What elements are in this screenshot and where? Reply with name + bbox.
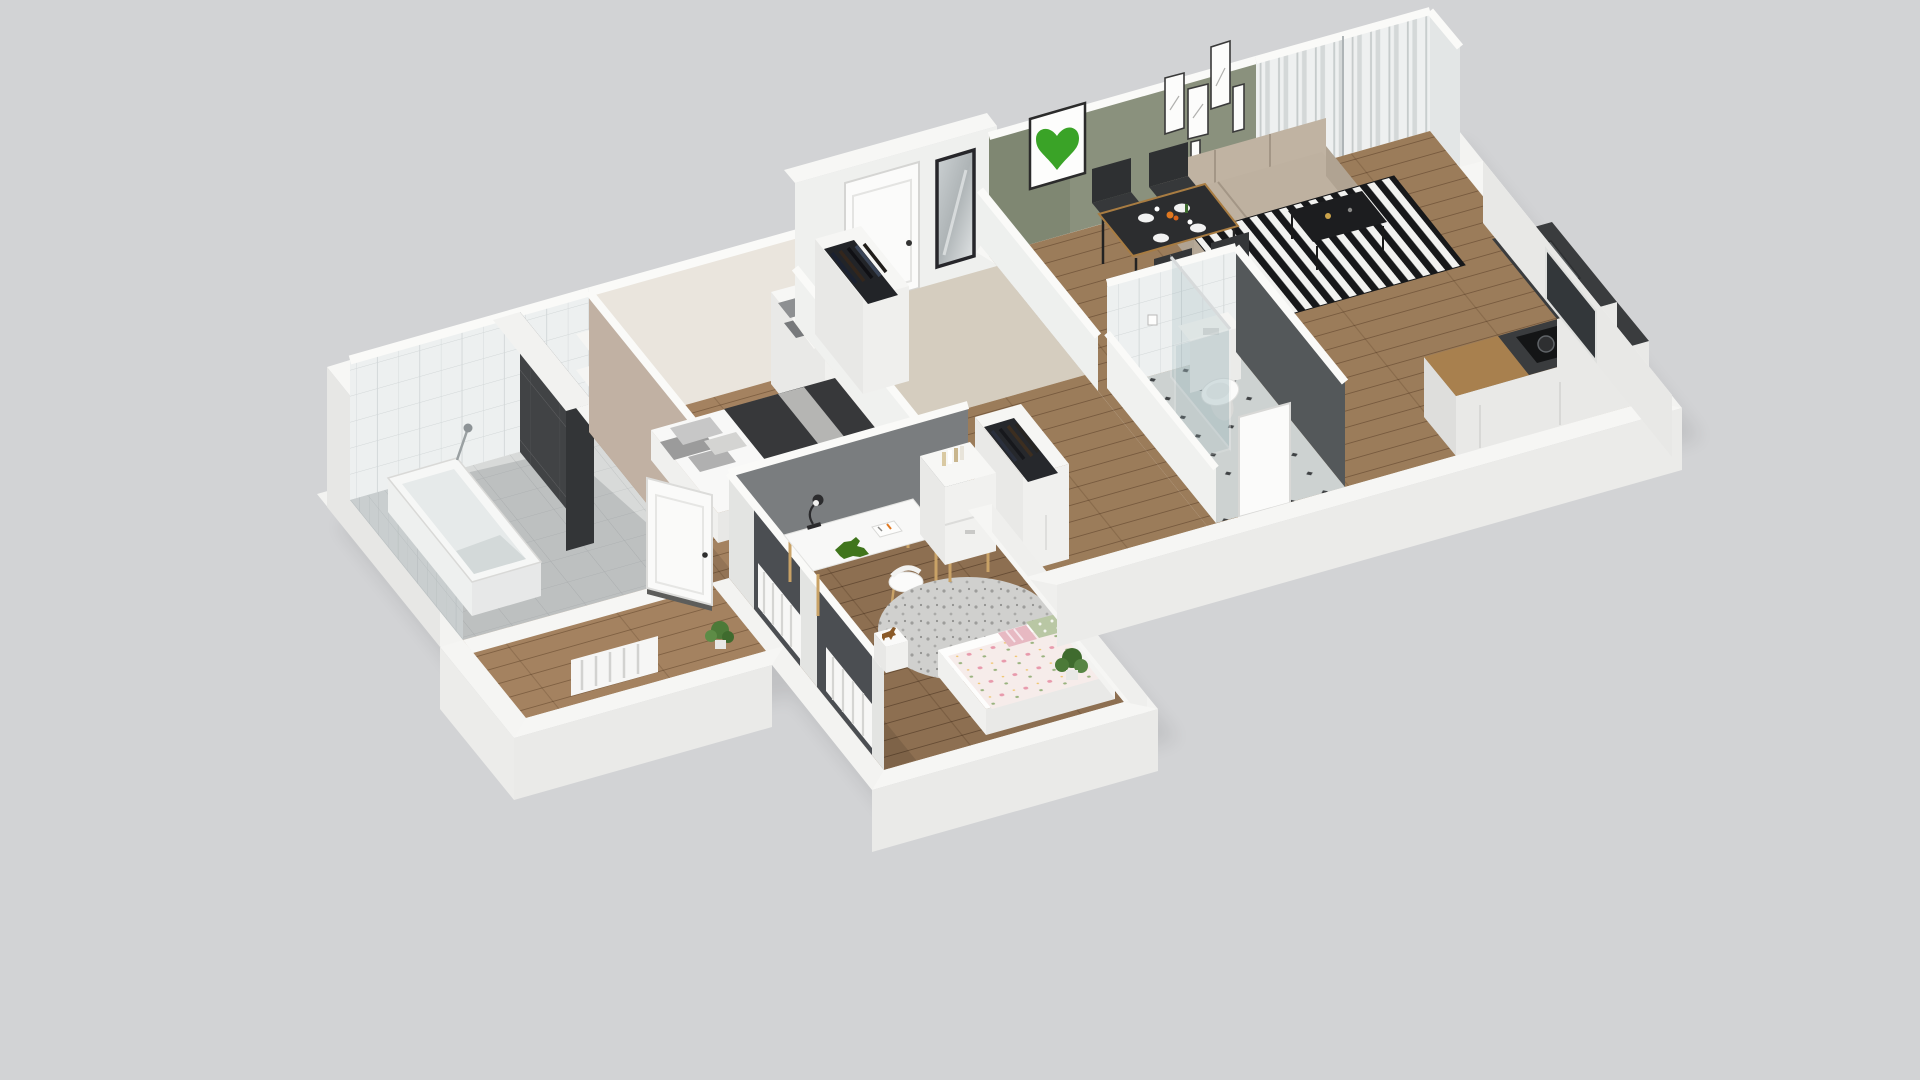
wc-door [1239,403,1290,517]
drawer-handle [965,530,975,534]
heart-artwork [1030,103,1085,189]
wall-mirror [937,150,974,267]
pot [1538,336,1554,352]
fruit [1167,212,1174,219]
floor-plan-render [0,0,1920,1080]
apartment-3d-scene [0,0,1920,1080]
bottle [1185,204,1188,213]
toilet-paper-holder [1148,315,1157,325]
open-door [647,478,712,605]
shower-head-icon [464,424,473,433]
decor [1325,213,1331,219]
door-handle [702,552,708,558]
door-handle [906,240,912,246]
